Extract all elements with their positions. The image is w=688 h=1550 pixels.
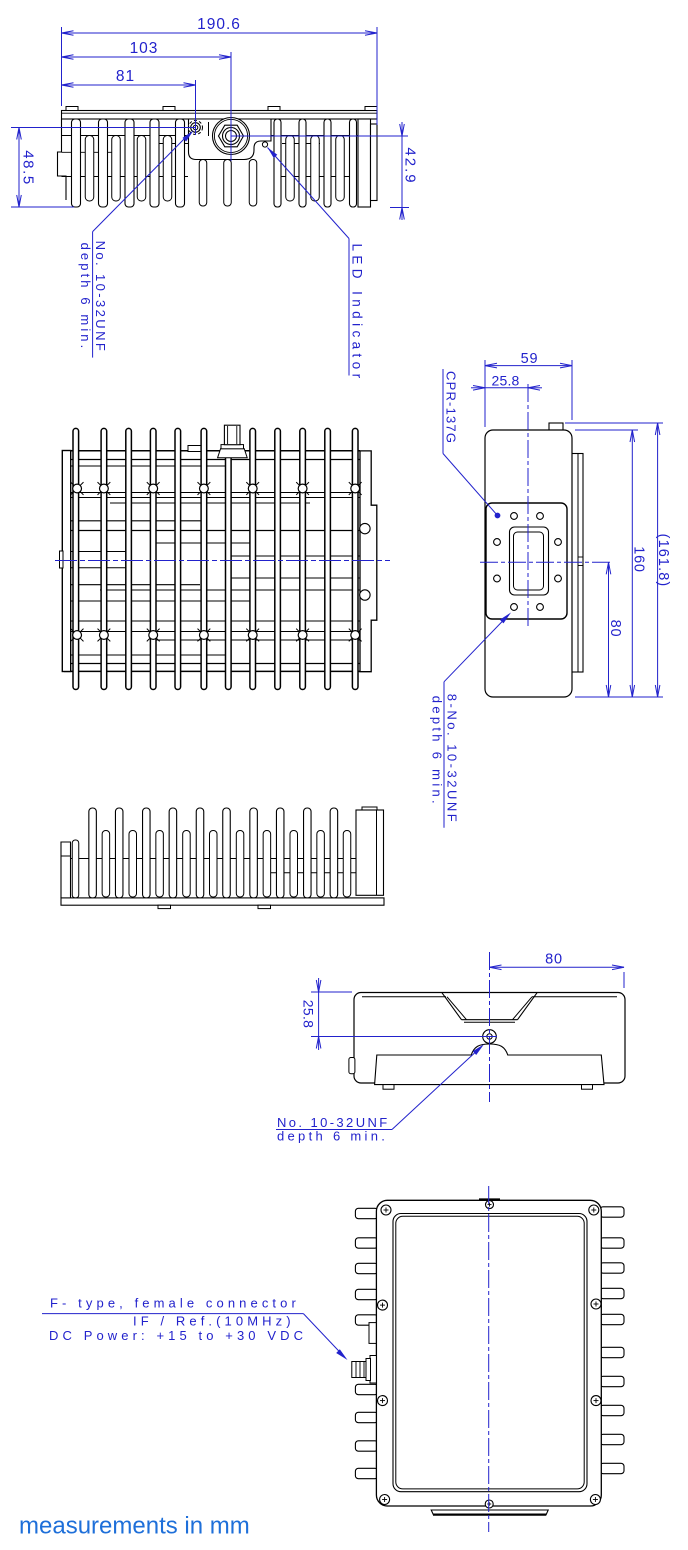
svg-text:48.5: 48.5 <box>20 150 37 186</box>
svg-text:190.6: 190.6 <box>197 16 241 33</box>
svg-text:81: 81 <box>116 68 135 85</box>
svg-text:80: 80 <box>545 951 563 967</box>
svg-text:depth 6 min.: depth 6 min. <box>78 243 93 352</box>
svg-text:LED Indicator: LED Indicator <box>350 244 365 383</box>
svg-text:25.8: 25.8 <box>491 372 519 388</box>
svg-text:depth 6 min.: depth 6 min. <box>277 1129 388 1144</box>
svg-text:No. 10-32UNF: No. 10-32UNF <box>93 241 108 354</box>
svg-text:42.9: 42.9 <box>402 147 419 184</box>
svg-text:8-No. 10-32UNF: 8-No. 10-32UNF <box>445 694 460 824</box>
svg-text:103: 103 <box>130 40 159 57</box>
svg-text:F- type, female connector: F- type, female connector <box>50 1295 300 1310</box>
svg-text:25.8: 25.8 <box>301 1000 317 1028</box>
svg-text:measurements in mm: measurements in mm <box>19 1513 250 1540</box>
svg-text:80: 80 <box>607 620 623 638</box>
svg-text:IF / Ref.(10MHz): IF / Ref.(10MHz) <box>133 1314 295 1329</box>
svg-text:DC Power: +15 to +30 VDC: DC Power: +15 to +30 VDC <box>49 1328 307 1343</box>
svg-text:(161.8): (161.8) <box>655 534 671 588</box>
svg-text:160: 160 <box>631 546 647 573</box>
svg-text:59: 59 <box>521 351 539 367</box>
svg-text:CPR-137G: CPR-137G <box>444 371 459 444</box>
svg-text:depth 6 min.: depth 6 min. <box>430 696 445 807</box>
